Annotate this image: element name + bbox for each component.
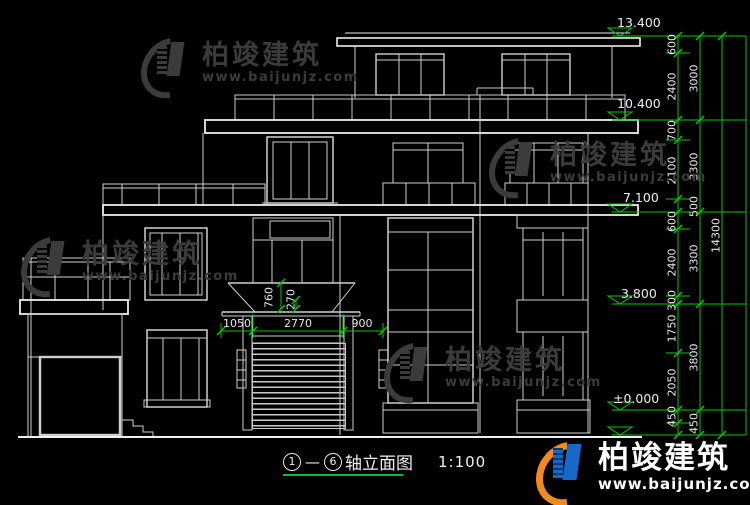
dim-2770: 2770 (280, 317, 316, 330)
title-text: 轴立面图 (345, 449, 413, 474)
title-underline (283, 474, 403, 476)
elevation-label-3800: 3.800 (621, 286, 657, 301)
drawing-title: 1 — 6 轴立面图 1:100 (283, 449, 486, 474)
dim-1050: 1050 (219, 317, 255, 330)
floor4-wall-windows (355, 46, 612, 98)
dim-900: 900 (348, 317, 376, 330)
axis-dash: — (305, 453, 320, 471)
dim-270: 270 (285, 285, 298, 315)
cad-elevation-drawing: 13.400 10.400 7.100 3.800 ±0.000 600 240… (0, 0, 750, 505)
dim-3300a: 3300 (688, 147, 701, 187)
footer-logo: 柏竣建筑 www.baijunjz.com (538, 436, 750, 498)
roof-slab (337, 33, 640, 46)
footer-logo-icon (538, 436, 592, 498)
dim-600b: 600 (666, 202, 679, 242)
elevation-label-7100: 7.100 (623, 190, 659, 205)
entrance-rolling-door (252, 343, 346, 429)
dim-3800: 3800 (688, 338, 701, 378)
dim-2100: 2100 (666, 151, 679, 191)
axis-start-bubble: 1 (283, 453, 301, 471)
elevation-linework (0, 0, 750, 505)
elevation-label-10400: 10.400 (617, 96, 661, 111)
dim-2400b: 2400 (666, 243, 679, 283)
dim-1750: 1750 (666, 309, 679, 349)
roof-terrace-railing (235, 88, 625, 120)
slab-level-7100 (103, 205, 638, 215)
dim-700: 700 (666, 111, 679, 151)
floor1-left-wing (20, 258, 210, 437)
slab-level-10400 (205, 120, 638, 133)
elevation-label-13400: 13.400 (617, 15, 661, 30)
title-scale: 1:100 (438, 453, 486, 471)
elevation-label-0000: ±0.000 (613, 391, 659, 406)
dim-14300: 14300 (710, 211, 723, 261)
footer-url: www.baijunjz.com (598, 477, 750, 492)
floor1-right-windows (517, 332, 590, 433)
axis-end-bubble: 6 (324, 453, 342, 471)
footer-brand: 柏竣建筑 (598, 443, 750, 474)
dim-600a: 600 (666, 25, 679, 65)
dim-450a: 450 (666, 397, 679, 437)
dim-500: 500 (688, 187, 701, 227)
dim-760: 760 (263, 283, 276, 313)
dim-3300b: 3300 (688, 239, 701, 279)
dim-3000: 3000 (688, 59, 701, 99)
dim-2400a: 2400 (666, 67, 679, 107)
